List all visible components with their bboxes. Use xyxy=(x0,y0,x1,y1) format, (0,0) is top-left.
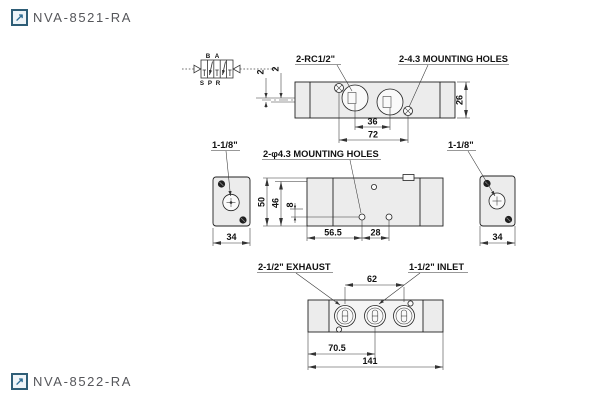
front-view-dim-8: 8 xyxy=(285,202,295,207)
bottom-view-inlet-port xyxy=(365,306,386,327)
left-view-dim-34: 34 xyxy=(226,232,236,242)
bottom-view-exhaust-label: 2-1/2" EXHAUST xyxy=(258,262,331,272)
top-view-offset-b: 2 xyxy=(271,66,281,71)
front-view-dim-50: 50 xyxy=(257,197,267,207)
right-side-view: 1-1/8" 34 xyxy=(447,140,515,246)
product-label-bottom: NVA-8522-RA xyxy=(33,374,132,389)
left-side-view: 1-1/8" 34 xyxy=(211,140,250,246)
front-view-mount-label: 2-φ4.3 MOUNTING HOLES xyxy=(263,149,379,159)
bottom-view-dim-70-5: 70.5 xyxy=(328,343,346,353)
left-view-screw-bottom xyxy=(239,216,246,223)
left-view-screw-top xyxy=(218,180,225,187)
right-view-port-label: 1-1/8" xyxy=(448,140,474,150)
top-view-mounting-hole-2 xyxy=(404,107,413,116)
top-view-mount-label: 2-4.3 MOUNTING HOLES xyxy=(399,54,508,64)
bottom-view-dim-141: 141 xyxy=(362,356,377,366)
front-view-mounting-hole-2 xyxy=(386,214,392,220)
symbol-port-a: A xyxy=(215,53,220,60)
symbol-port-p: P xyxy=(208,80,212,87)
top-view-port-label: 2-RC1/2" xyxy=(296,54,335,64)
symbol-port-s: S xyxy=(200,80,204,87)
bottom-view-exhaust-port-right xyxy=(394,306,415,327)
left-view-port xyxy=(223,194,239,210)
top-view-dim-26: 26 xyxy=(455,95,465,105)
right-view-dim-34: 34 xyxy=(492,232,502,242)
right-view-port xyxy=(489,193,505,209)
symbol-port-r: R xyxy=(216,80,221,87)
front-view-dim-46: 46 xyxy=(271,198,281,208)
front-view-tab xyxy=(403,175,414,181)
external-link-icon: ↗ xyxy=(11,373,28,390)
bottom-view-pitch-dim: 62 xyxy=(345,274,404,304)
symbol-port-b: B xyxy=(206,53,211,60)
front-view-top-hole xyxy=(371,184,376,189)
bottom-view-small-hole-left xyxy=(336,327,341,332)
pilot-triangle-right xyxy=(233,65,240,73)
top-view-dim-36: 36 xyxy=(367,117,377,127)
left-view-width-dim: 34 xyxy=(213,228,250,246)
bottom-view: 2-1/2" EXHAUST 1-1/2" INLET 62 70.5 xyxy=(257,262,468,370)
bottom-view-dim-62: 62 xyxy=(367,274,377,284)
bottom-view-inlet-label: 1-1/2" INLET xyxy=(409,262,464,272)
product-label-top: NVA-8521-RA xyxy=(33,10,132,25)
top-view-dim-72: 72 xyxy=(368,130,378,140)
top-view-offset-a: 2 xyxy=(256,69,266,74)
bottom-view-exhaust-port-left xyxy=(335,306,356,327)
top-view-body xyxy=(295,82,455,118)
right-view-screw-bottom xyxy=(505,216,512,223)
left-view-port-label: 1-1/8" xyxy=(212,140,238,150)
front-view-dim-56-5: 56.5 xyxy=(324,228,342,238)
front-view: 50 46 8 56.5 28 2-φ4.3 MOUNTING HOLES xyxy=(257,149,444,241)
front-view-mounting-hole-1 xyxy=(359,214,365,220)
top-view-mounting-hole-1 xyxy=(335,84,344,93)
right-view-screw-top xyxy=(483,180,490,187)
product-link-nva-8522-ra[interactable]: ↗ NVA-8522-RA xyxy=(11,373,132,390)
top-view: 2 2 36 72 26 xyxy=(256,54,510,143)
pilot-triangle-left xyxy=(194,65,201,73)
product-link-nva-8521-ra[interactable]: ↗ NVA-8521-RA xyxy=(11,9,132,26)
right-view-width-dim: 34 xyxy=(480,226,515,246)
drawing-page: B A S P R xyxy=(0,0,612,403)
front-view-height-dims: 50 46 8 xyxy=(257,178,308,226)
technical-drawing: B A S P R xyxy=(0,0,612,403)
external-link-icon: ↗ xyxy=(11,9,28,26)
front-view-dim-28: 28 xyxy=(370,228,380,238)
bottom-view-small-hole-right xyxy=(408,301,413,306)
top-view-height-dim: 26 xyxy=(455,82,471,118)
